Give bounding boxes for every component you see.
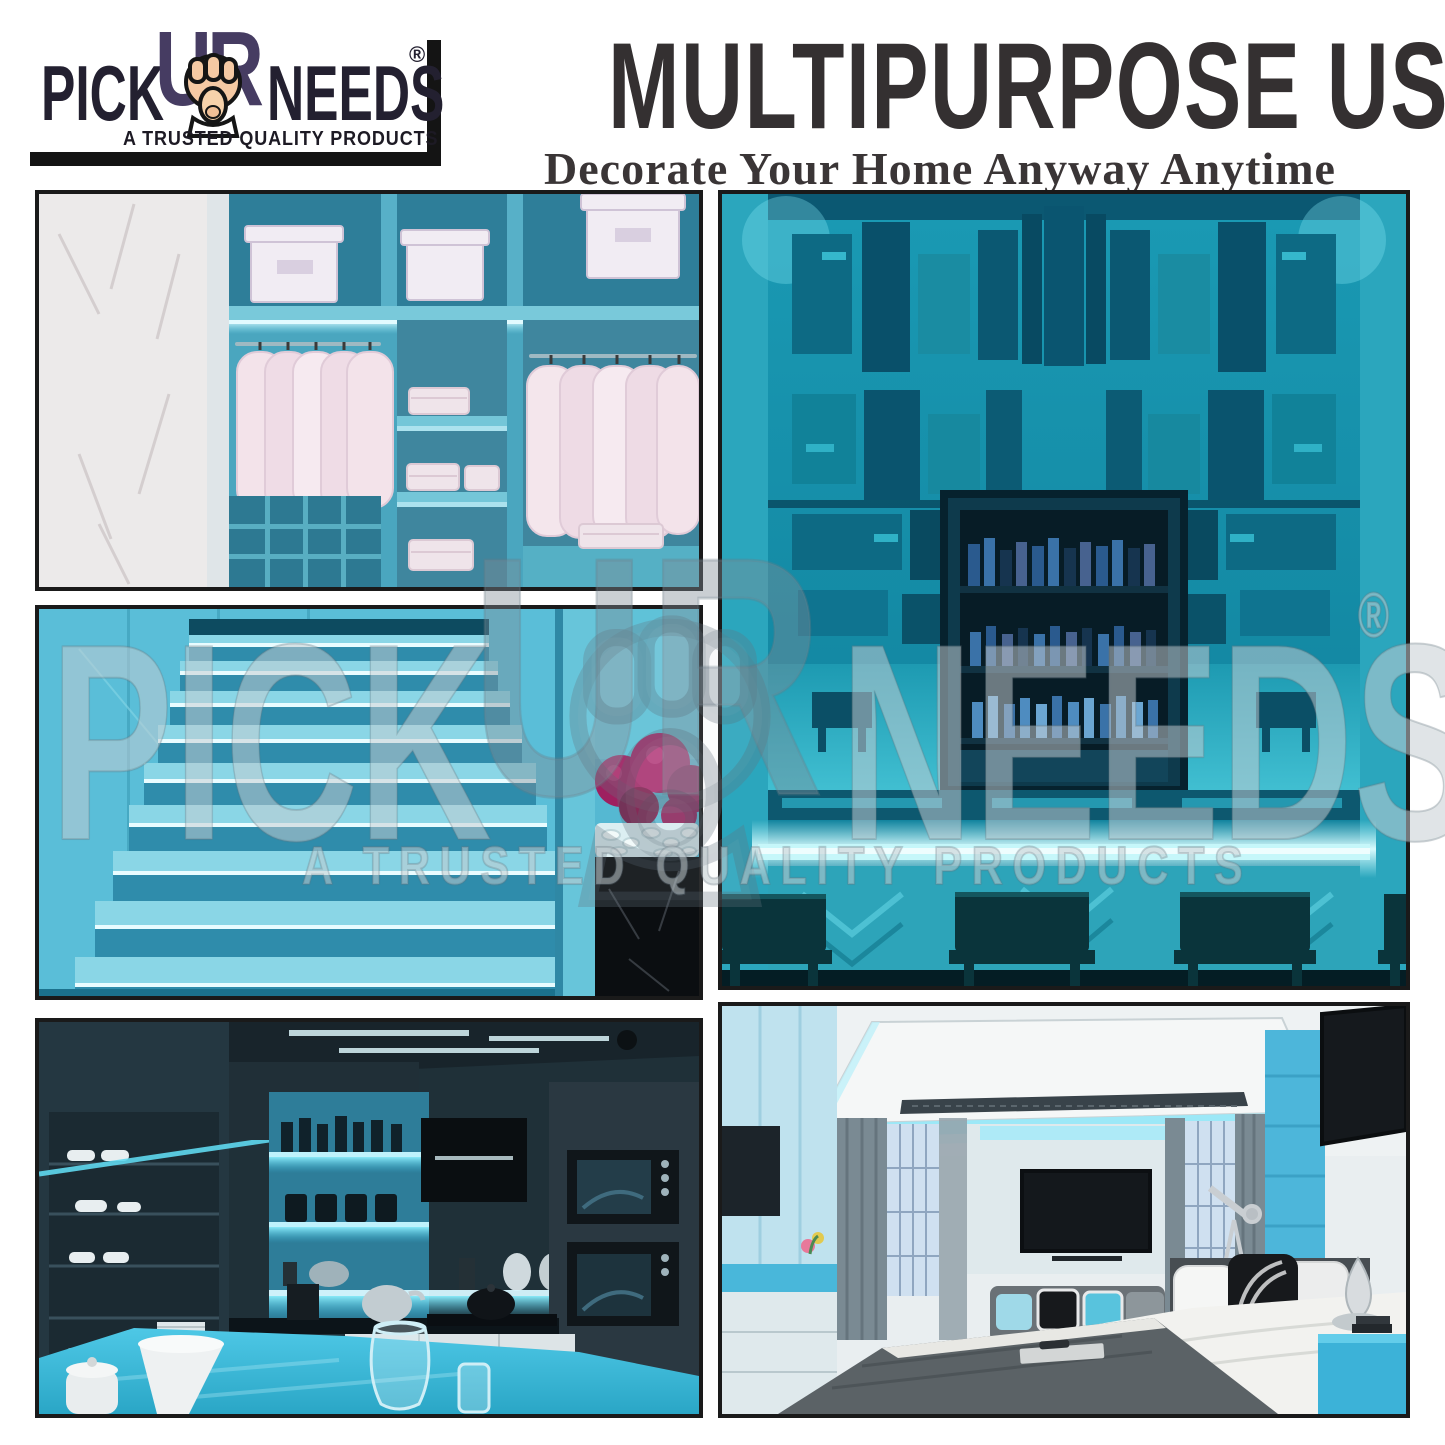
photo-kitchen: [35, 1018, 703, 1418]
pointing-hand-icon: [161, 26, 265, 138]
kitchen-illustration: [39, 1022, 699, 1414]
bar-illustration: [722, 194, 1406, 986]
poster: PICK UR NEEDS ® A TRUSTED QUALITY PRODUC…: [0, 0, 1445, 1445]
header: MULTIPURPOSE USE Decorate Your Home Anyw…: [450, 24, 1430, 195]
page-title: MULTIPURPOSE USE: [608, 24, 1445, 147]
photo-stairs: [35, 605, 703, 1000]
photo-bar: [718, 190, 1410, 990]
logo-frame-bottom: [30, 152, 436, 166]
bedroom-illustration: [722, 1006, 1406, 1414]
stairs-illustration: [39, 609, 699, 996]
brand-logo: PICK UR NEEDS ® A TRUSTED QUALITY PRODUC…: [35, 26, 450, 171]
registered-mark: ®: [409, 42, 425, 68]
photo-bedroom: [718, 1002, 1410, 1418]
logo-ur-hand: UR: [159, 16, 267, 144]
closet-illustration: [39, 194, 699, 587]
logo-tagline: A TRUSTED QUALITY PRODUCTS: [123, 128, 438, 151]
photo-closet: [35, 190, 703, 591]
logo-text-pick: PICK: [41, 54, 164, 132]
